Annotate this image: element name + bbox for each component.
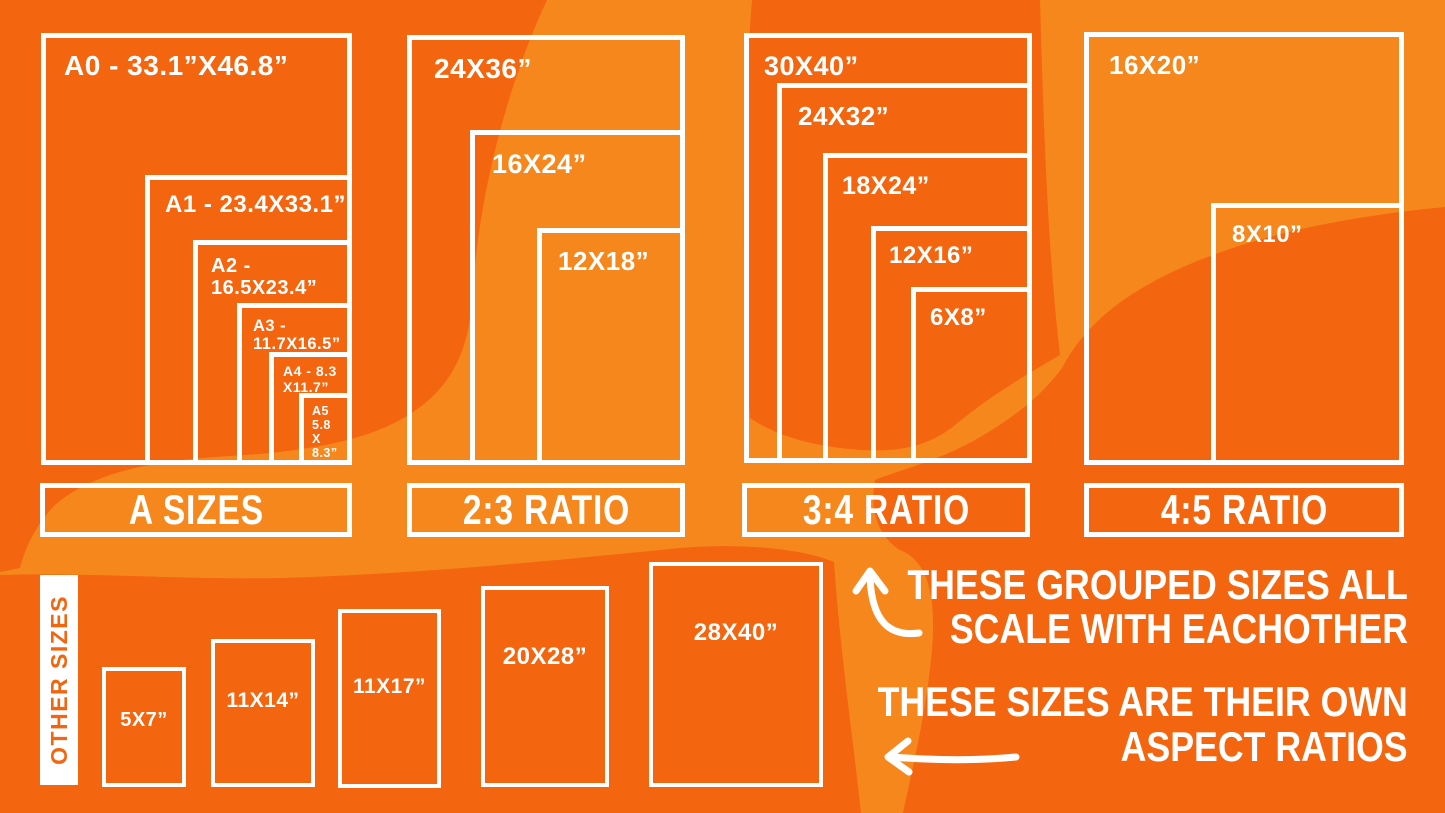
size-label-24x32: 24X32” — [798, 102, 889, 131]
size-label-24x36: 24X36” — [434, 53, 532, 84]
group-label-4-5-ratio: 4:5 RATIO — [1084, 483, 1404, 537]
size-label-a2: A2 - 16.5X23.4” — [211, 255, 347, 300]
size-label-11x14: 11X14” — [215, 689, 311, 713]
annotation-own-ratio-line2: ASPECT RATIOS — [1121, 726, 1408, 768]
size-box-20x28: 20X28” — [481, 586, 609, 787]
group-label-3-4-ratio-text: 3:4 RATIO — [802, 486, 969, 534]
size-box-5x7: 5X7” — [102, 667, 186, 787]
annotation-grouped-scale-line1: THESE GROUPED SIZES ALL — [907, 564, 1408, 606]
size-label-30x40: 30X40” — [764, 51, 859, 81]
size-label-a4: A4 - 8.3 X11.7” — [283, 364, 337, 395]
annotation-own-ratio-line1: THESE SIZES ARE THEIR OWN — [878, 681, 1408, 723]
annotation-grouped-scale-line2: SCALE WITH EACHOTHER — [950, 608, 1408, 650]
group-label-4-5-ratio-text: 4:5 RATIO — [1160, 486, 1327, 534]
size-label-a3: A3 - 11.7X16.5” — [253, 317, 347, 354]
size-label-8x10: 8X10” — [1232, 222, 1303, 249]
group-label-a-sizes: A SIZES — [40, 483, 352, 537]
size-label-16x20: 16X20” — [1109, 51, 1200, 80]
size-label-20x28: 20X28” — [485, 644, 605, 671]
poster-size-infographic: A0 - 33.1”X46.8” A1 - 23.4X33.1” A2 - 16… — [0, 0, 1445, 813]
size-box-28x40: 28X40” — [649, 562, 823, 787]
size-box-11x17: 11X17” — [338, 609, 441, 788]
size-label-16x24: 16X24” — [492, 149, 587, 179]
size-label-5x7: 5X7” — [106, 709, 182, 731]
size-box-a5: A5 5.8 X 8.3” — [299, 393, 352, 465]
size-label-18x24: 18X24” — [842, 172, 930, 200]
size-label-a1: A1 - 23.4X33.1” — [165, 192, 346, 219]
size-box-11x14: 11X14” — [211, 639, 315, 787]
size-label-12x18: 12X18” — [558, 247, 649, 276]
size-label-a5: A5 5.8 X 8.3” — [312, 404, 338, 460]
other-sizes-bar: OTHER SIZES — [40, 575, 78, 785]
size-box-6x8: 6X8” — [911, 287, 1032, 463]
size-label-a0: A0 - 33.1”X46.8” — [64, 50, 288, 81]
size-label-12x16: 12X16” — [889, 243, 973, 270]
size-box-8x10: 8X10” — [1211, 203, 1404, 465]
group-label-3-4-ratio: 3:4 RATIO — [742, 483, 1030, 537]
other-sizes-label: OTHER SIZES — [46, 595, 73, 765]
size-label-28x40: 28X40” — [653, 620, 819, 647]
group-label-2-3-ratio: 2:3 RATIO — [407, 483, 685, 537]
size-box-12x18: 12X18” — [537, 228, 685, 465]
size-label-11x17: 11X17” — [342, 675, 437, 699]
group-label-a-sizes-text: A SIZES — [128, 486, 263, 534]
group-label-2-3-ratio-text: 2:3 RATIO — [462, 486, 629, 534]
size-label-6x8: 6X8” — [930, 305, 987, 332]
